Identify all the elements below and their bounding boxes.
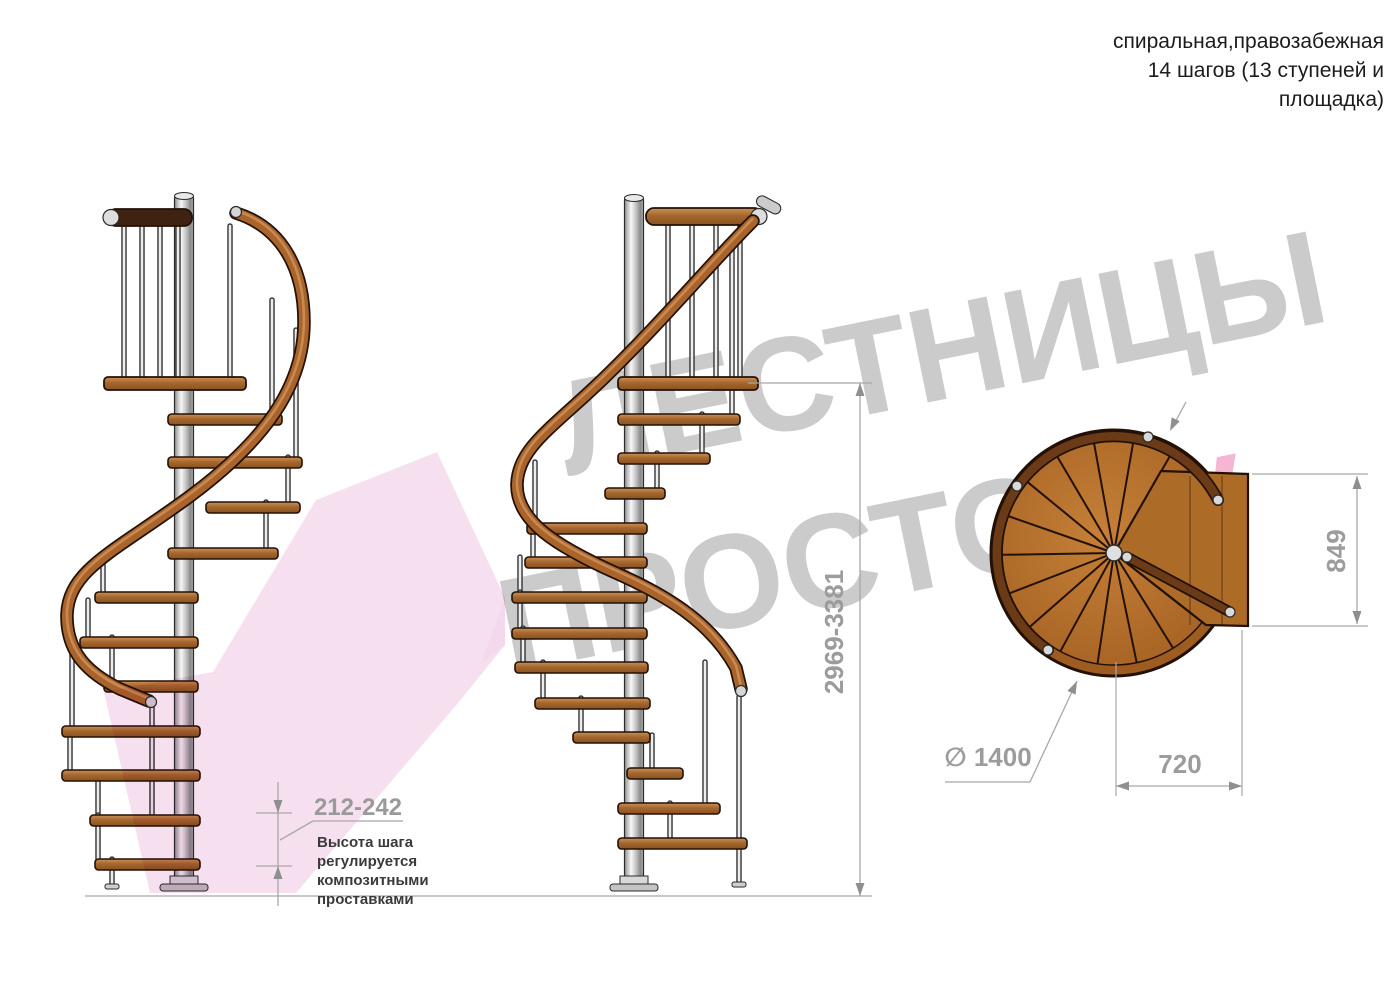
dim-step-width-label: 720 [1158, 749, 1201, 779]
step [206, 502, 300, 513]
center-pole [625, 198, 644, 884]
step [627, 768, 683, 779]
baluster-foot [732, 882, 746, 887]
step [512, 628, 647, 639]
pole-top-cap [175, 193, 194, 200]
step-height-note-line3: композитными [317, 872, 429, 889]
diameter-leader [1030, 681, 1077, 782]
plan-baluster-dot [1143, 432, 1153, 442]
step [618, 838, 747, 849]
pole-base-flange [610, 884, 658, 891]
title-line3: площадка) [1279, 88, 1384, 111]
handrail-end-cap [231, 207, 242, 218]
plan-center-pole [1106, 545, 1122, 561]
dimension-arrowhead [1353, 611, 1362, 624]
plan-baluster-dot [1043, 645, 1053, 655]
spiral-staircase-technical-drawing: ЛЕСТНИЦЫ ПРОСТО.ру спиральная,правозабеж… [0, 0, 1400, 1000]
plan-baluster-dot [1213, 495, 1223, 505]
pole-base [620, 876, 648, 884]
plan-baluster-dot [1225, 607, 1235, 617]
handrail-end-cap [103, 210, 119, 226]
step [618, 414, 740, 425]
step-height-note-line1: Высота шага [317, 834, 414, 851]
watermark-arrow-facet [104, 645, 505, 893]
step [573, 732, 650, 743]
dimension-arrowhead [856, 883, 865, 896]
step [512, 592, 647, 603]
dimension-arrowhead [1353, 476, 1362, 489]
dim-platform-depth-label: 849 [1321, 529, 1351, 572]
step [535, 698, 650, 709]
dimension-arrowhead [1116, 782, 1129, 791]
watermark-arrow-facet [213, 452, 505, 672]
plan-baluster-dot [1122, 552, 1132, 562]
step [515, 662, 648, 673]
baluster-foot [105, 884, 119, 889]
step [95, 592, 198, 603]
pole-top-cap [625, 195, 644, 202]
title-line2: 14 шагов (13 ступеней и [1148, 59, 1384, 82]
dim-diameter-label: ∅ 1400 [944, 742, 1031, 772]
plan-baluster-dot [1012, 481, 1022, 491]
handrail-end-cap [736, 686, 747, 697]
step [168, 548, 278, 559]
step [80, 637, 198, 648]
platform-board [104, 377, 246, 390]
platform-handrail [108, 209, 192, 226]
step [605, 488, 665, 499]
step-height-note-line2: регулируется [317, 853, 417, 870]
diameter-leader-arrowhead [1067, 679, 1081, 695]
step [618, 803, 720, 814]
step [618, 453, 710, 464]
platform-board [618, 377, 758, 390]
dim-total-height-label: 2969-3381 [819, 570, 849, 694]
title-line1: спиральная,правозабежная [1113, 30, 1384, 53]
dimension-arrowhead [1229, 782, 1242, 791]
dim-step-height-label: 212-242 [314, 794, 402, 821]
step-height-note-line4: проставками [317, 891, 414, 908]
